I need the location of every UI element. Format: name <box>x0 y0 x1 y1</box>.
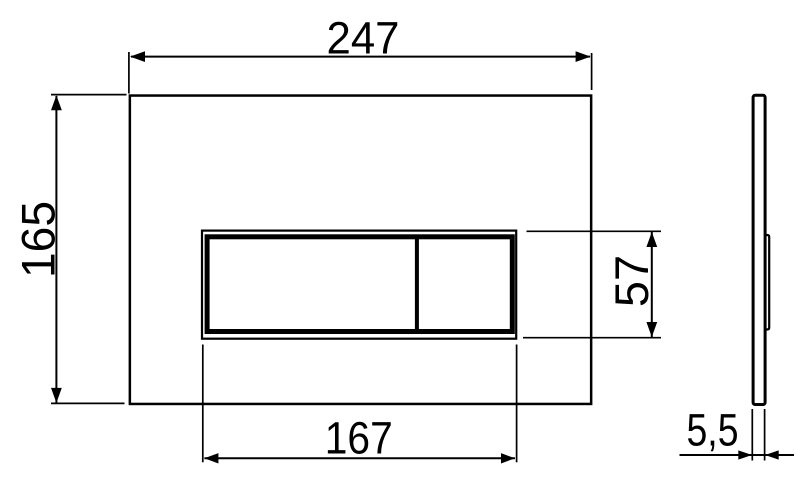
svg-text:167: 167 <box>325 413 393 464</box>
svg-text:5,5: 5,5 <box>687 405 739 456</box>
svg-text:247: 247 <box>327 13 400 64</box>
svg-text:57: 57 <box>605 255 658 307</box>
svg-text:165: 165 <box>12 201 65 278</box>
